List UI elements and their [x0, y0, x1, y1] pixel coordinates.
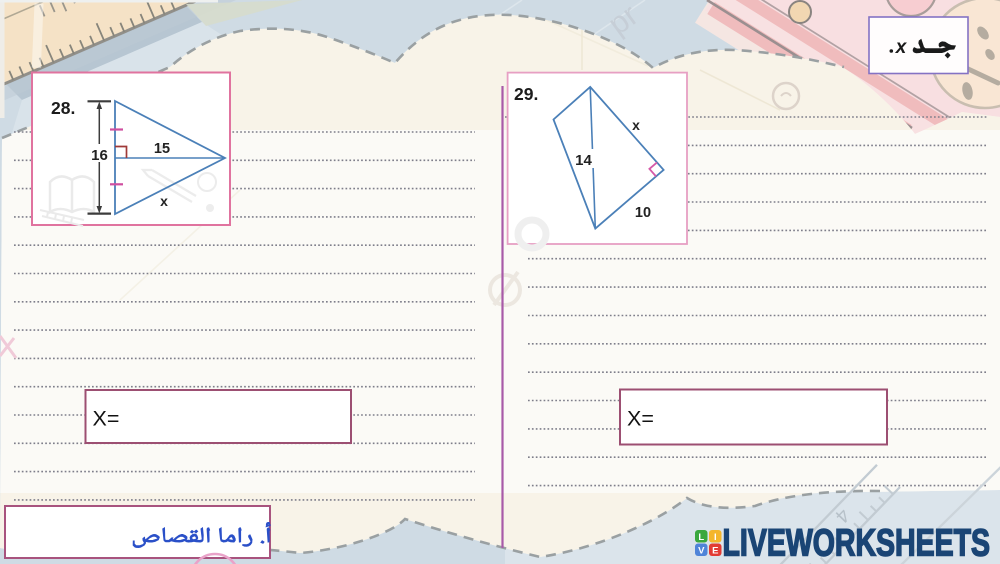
svg-text:x: x	[632, 117, 640, 133]
svg-text:L: L	[698, 532, 704, 543]
svg-text:V: V	[698, 546, 705, 557]
svg-text:16: 16	[91, 147, 108, 164]
svg-text:14: 14	[575, 152, 592, 169]
svg-text:28.: 28.	[51, 98, 75, 118]
svg-text:I: I	[714, 532, 717, 543]
svg-text:LIVEWORKSHEETS: LIVEWORKSHEETS	[723, 523, 991, 564]
svg-text:10: 10	[635, 205, 651, 221]
svg-text:x: x	[160, 193, 168, 209]
svg-text:x: x	[895, 37, 908, 58]
svg-text:29.: 29.	[514, 84, 538, 104]
svg-text:15: 15	[154, 141, 170, 157]
svg-text:E: E	[712, 546, 718, 557]
svg-text:X=: X=	[627, 407, 654, 431]
svg-text:X=: X=	[93, 407, 120, 431]
